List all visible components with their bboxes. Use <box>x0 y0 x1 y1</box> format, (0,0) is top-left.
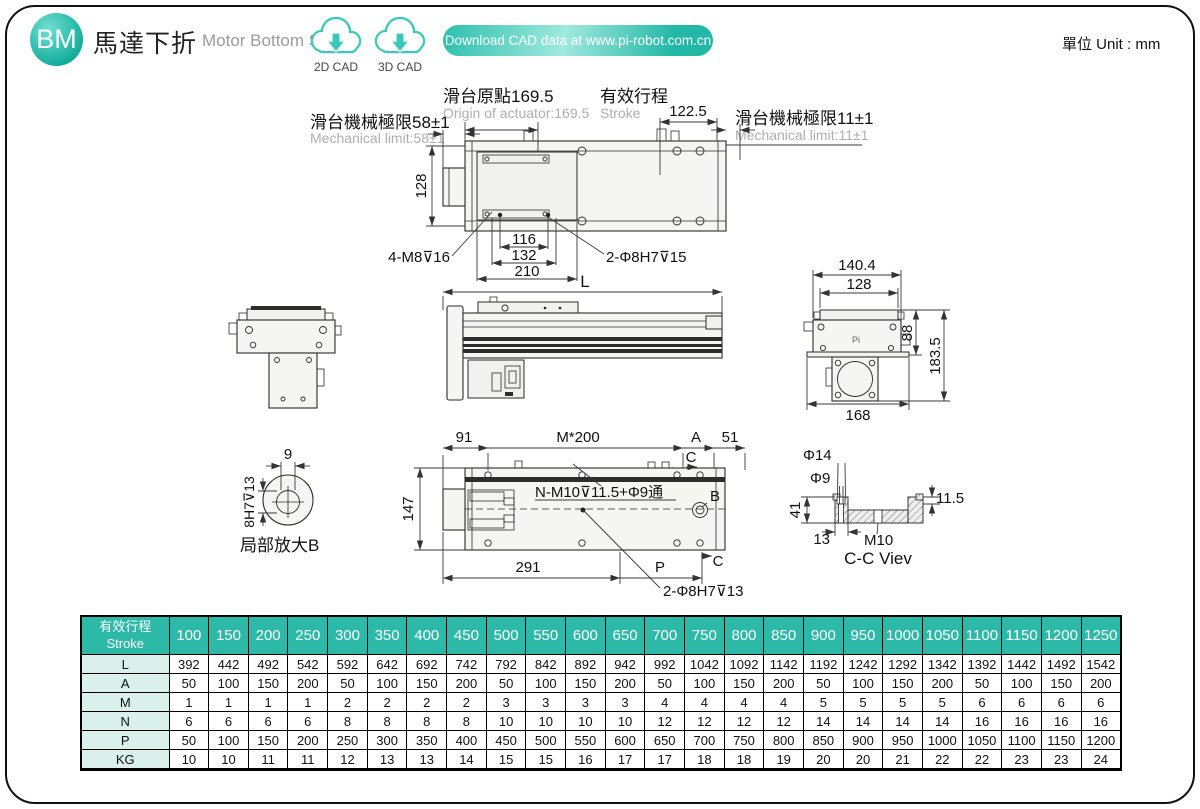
table-cell: 150 <box>566 674 606 693</box>
table-cell: 21 <box>883 750 923 770</box>
table-cell: 792 <box>486 655 526 674</box>
table-cell: 1 <box>169 693 209 712</box>
label-2-phi8h7-15: 2-Φ8H7⊽15 <box>606 249 687 266</box>
label-4-m8: 4-M8⊽16 <box>388 249 450 266</box>
table-cell: 3 <box>566 693 606 712</box>
table-cell: 642 <box>367 655 407 674</box>
origin-zh: 滑台原點169.5 <box>443 87 554 106</box>
stroke-col-header: 650 <box>605 616 645 655</box>
stroke-col-header: 400 <box>407 616 447 655</box>
table-cell: 50 <box>804 674 844 693</box>
table-cell: 16 <box>1041 712 1081 731</box>
table-cell: 10 <box>526 712 566 731</box>
dim-210: 210 <box>514 263 539 280</box>
table-row-m: M111122223333444455556666 <box>81 693 1121 712</box>
table-cell: 11 <box>248 750 288 770</box>
right-end-view: Pi 140.4 128 88 183.5 168 <box>804 257 950 424</box>
table-cell: 942 <box>605 655 645 674</box>
table-row-p: P501001502002503003504004505005506006507… <box>81 731 1121 750</box>
table-cell: 20 <box>804 750 844 770</box>
table-cell: 8 <box>407 712 447 731</box>
stroke-col-header: 100 <box>169 616 209 655</box>
table-cell: 392 <box>169 655 209 674</box>
table-cell: 6 <box>248 712 288 731</box>
table-cell: 20 <box>843 750 883 770</box>
table-cell: 842 <box>526 655 566 674</box>
left-end-view <box>229 306 341 408</box>
table-cell: 800 <box>764 731 804 750</box>
table-cell: 1100 <box>1002 731 1042 750</box>
table-cell: 492 <box>248 655 288 674</box>
table-cell: 6 <box>209 712 249 731</box>
stroke-col-header: 750 <box>685 616 725 655</box>
table-cell: 992 <box>645 655 685 674</box>
table-cell: 1 <box>288 693 328 712</box>
table-cell: 950 <box>883 731 923 750</box>
stroke-col-header: 600 <box>566 616 606 655</box>
table-cell: 18 <box>724 750 764 770</box>
table-cell: 150 <box>248 674 288 693</box>
table-cell: 16 <box>566 750 606 770</box>
table-cell: 892 <box>566 655 606 674</box>
row-label: L <box>81 655 169 674</box>
table-cell: 1 <box>209 693 249 712</box>
table-cell: 100 <box>367 674 407 693</box>
table-cell: 200 <box>447 674 487 693</box>
table-cell: 500 <box>526 731 566 750</box>
dim-116: 116 <box>512 231 536 248</box>
stroke-col-header: 1150 <box>1002 616 1042 655</box>
dim-P: P <box>655 559 665 576</box>
stroke-col-header: 1200 <box>1041 616 1081 655</box>
table-cell: 300 <box>367 731 407 750</box>
table-cell: 200 <box>605 674 645 693</box>
table-cell: 6 <box>1081 693 1121 712</box>
top-plan-view: 128 116 132 210 4-M8⊽16 2-Φ8H7⊽15 滑台機械極限… <box>310 87 873 281</box>
table-cell: 22 <box>922 750 962 770</box>
technical-drawing: 128 116 132 210 4-M8⊽16 2-Φ8H7⊽15 滑台機械極限… <box>0 0 1200 615</box>
table-cell: 592 <box>328 655 368 674</box>
table-cell: 16 <box>962 712 1002 731</box>
table-cell: 100 <box>526 674 566 693</box>
table-cell: 3 <box>605 693 645 712</box>
cc-view-caption: C-C Viev <box>844 549 912 568</box>
table-cell: 14 <box>883 712 923 731</box>
table-row-l: L392442492542592642692742792842892942992… <box>81 655 1121 674</box>
dim-phi14: Φ14 <box>803 447 832 464</box>
table-cell: 13 <box>407 750 447 770</box>
table-cell: 1292 <box>883 655 923 674</box>
stroke-col-header: 1050 <box>922 616 962 655</box>
table-cell: 8 <box>328 712 368 731</box>
table-cell: 2 <box>447 693 487 712</box>
dim-8h7-13: 8H7⊽13 <box>241 476 257 528</box>
table-cell: 5 <box>804 693 844 712</box>
table-cell: 23 <box>1041 750 1081 770</box>
label-n-m10: N-M10⊽11.5+Φ9通 <box>535 484 663 501</box>
detail-b-caption: 局部放大B <box>240 536 319 555</box>
dim-88: 88 <box>899 325 916 342</box>
table-cell: 50 <box>962 674 1002 693</box>
table-cell: 2 <box>328 693 368 712</box>
stroke-col-header: 700 <box>645 616 685 655</box>
table-cell: 14 <box>804 712 844 731</box>
table-cell: 50 <box>169 731 209 750</box>
stroke-col-header: 850 <box>764 616 804 655</box>
stroke-col-header: 350 <box>367 616 407 655</box>
dim-13: 13 <box>813 531 830 548</box>
table-cell: 1150 <box>1041 731 1081 750</box>
dim-A: A <box>691 429 701 446</box>
table-cell: 17 <box>645 750 685 770</box>
section-c-top: C <box>686 449 697 466</box>
table-cell: 12 <box>645 712 685 731</box>
table-cell: 18 <box>685 750 725 770</box>
table-cell: 8 <box>447 712 487 731</box>
table-cell: 50 <box>486 674 526 693</box>
table-cell: 10 <box>605 712 645 731</box>
dim-L: L <box>580 272 589 291</box>
dim-51: 51 <box>722 429 739 446</box>
dim-91: 91 <box>456 429 473 446</box>
table-row-a: A501001502005010015020050100150200501001… <box>81 674 1121 693</box>
stroke-col-header: 1100 <box>962 616 1002 655</box>
table-cell: 1092 <box>724 655 764 674</box>
dim-140-4: 140.4 <box>838 257 876 274</box>
table-cell: 4 <box>724 693 764 712</box>
table-cell: 2 <box>407 693 447 712</box>
table-cell: 550 <box>566 731 606 750</box>
table-cell: 100 <box>685 674 725 693</box>
table-cell: 650 <box>645 731 685 750</box>
table-cell: 150 <box>407 674 447 693</box>
table-cell: 5 <box>922 693 962 712</box>
stroke-col-header: 950 <box>843 616 883 655</box>
table-cell: 450 <box>486 731 526 750</box>
table-cell: 19 <box>764 750 804 770</box>
table-cell: 150 <box>1041 674 1081 693</box>
table-cell: 15 <box>526 750 566 770</box>
table-cell: 200 <box>764 674 804 693</box>
table-cell: 200 <box>922 674 962 693</box>
table-cell: 100 <box>1002 674 1042 693</box>
dim-168: 168 <box>845 407 870 424</box>
limit-left-en: Mechanical limit:58±1 <box>310 130 445 146</box>
table-cell: 100 <box>209 731 249 750</box>
table-cell: 1200 <box>1081 731 1121 750</box>
table-cell: 1142 <box>764 655 804 674</box>
table-cell: 900 <box>843 731 883 750</box>
stroke-col-header: 200 <box>248 616 288 655</box>
table-cell: 1000 <box>922 731 962 750</box>
table-cell: 750 <box>724 731 764 750</box>
stroke-col-header: 550 <box>526 616 566 655</box>
bottom-view: N-M10⊽11.5+Φ9通 2-Φ8H7⊽13 B 91 M*200 A 51… <box>400 429 745 600</box>
table-cell: 12 <box>328 750 368 770</box>
table-cell: 1342 <box>922 655 962 674</box>
table-cell: 50 <box>169 674 209 693</box>
dim-183-5: 183.5 <box>927 337 944 375</box>
dim-122-5: 122.5 <box>669 103 707 120</box>
table-cell: 1042 <box>685 655 725 674</box>
dim-147: 147 <box>400 496 417 521</box>
table-cell: 12 <box>724 712 764 731</box>
table-cell: 1242 <box>843 655 883 674</box>
row-label: M <box>81 693 169 712</box>
dim-291: 291 <box>515 559 540 576</box>
table-cell: 100 <box>843 674 883 693</box>
stroke-col-header: 1000 <box>883 616 923 655</box>
label-2-phi8h7-13: 2-Φ8H7⊽13 <box>663 583 744 600</box>
table-cell: 2 <box>367 693 407 712</box>
table-cell: 150 <box>248 731 288 750</box>
row-label: N <box>81 712 169 731</box>
table-cell: 6 <box>1002 693 1042 712</box>
table-cell: 13 <box>367 750 407 770</box>
table-cell: 12 <box>685 712 725 731</box>
table-cell: 14 <box>843 712 883 731</box>
dim-128-top: 128 <box>413 173 430 198</box>
table-cell: 1 <box>248 693 288 712</box>
stroke-table-head: 有效行程Stroke100150200250300350400450500550… <box>81 616 1121 655</box>
table-cell: 4 <box>764 693 804 712</box>
table-cell: 16 <box>1081 712 1121 731</box>
table-cell: 10 <box>169 750 209 770</box>
side-view: L <box>443 272 722 400</box>
dim-128-end: 128 <box>846 276 871 293</box>
stroke-col-header: 500 <box>486 616 526 655</box>
pi-logo: Pi <box>852 335 860 345</box>
stroke-col-header: 250 <box>288 616 328 655</box>
table-cell: 1392 <box>962 655 1002 674</box>
stroke-zh: 有效行程 <box>600 87 668 106</box>
stroke-table: 有效行程Stroke100150200250300350400450500550… <box>80 615 1122 771</box>
table-cell: 150 <box>724 674 764 693</box>
table-cell: 17 <box>605 750 645 770</box>
table-cell: 100 <box>209 674 249 693</box>
table-row-kg: KG10101111121313141515161717181819202021… <box>81 750 1121 770</box>
row-label: A <box>81 674 169 693</box>
table-cell: 6 <box>962 693 1002 712</box>
table-cell: 700 <box>685 731 725 750</box>
table-cell: 14 <box>447 750 487 770</box>
row-label: P <box>81 731 169 750</box>
table-cell: 10 <box>566 712 606 731</box>
limit-right-en: Mechanical limit:11±1 <box>735 127 869 143</box>
label-B: B <box>710 488 720 505</box>
table-cell: 1492 <box>1041 655 1081 674</box>
table-cell: 4 <box>645 693 685 712</box>
table-cell: 1542 <box>1081 655 1121 674</box>
dim-m200: M*200 <box>556 429 599 446</box>
table-cell: 22 <box>962 750 1002 770</box>
table-cell: 1050 <box>962 731 1002 750</box>
stroke-header-label: 有效行程Stroke <box>81 616 169 655</box>
table-cell: 24 <box>1081 750 1121 770</box>
table-cell: 5 <box>843 693 883 712</box>
table-cell: 3 <box>486 693 526 712</box>
table-cell: 542 <box>288 655 328 674</box>
table-cell: 8 <box>367 712 407 731</box>
table-cell: 1192 <box>804 655 844 674</box>
table-cell: 600 <box>605 731 645 750</box>
table-cell: 250 <box>328 731 368 750</box>
table-cell: 400 <box>447 731 487 750</box>
table-cell: 442 <box>209 655 249 674</box>
table-cell: 1442 <box>1002 655 1042 674</box>
table-cell: 6 <box>288 712 328 731</box>
table-cell: 11 <box>288 750 328 770</box>
stroke-en: Stroke <box>600 105 641 121</box>
table-cell: 150 <box>883 674 923 693</box>
table-cell: 15 <box>486 750 526 770</box>
stroke-table-wrapper: 有效行程Stroke100150200250300350400450500550… <box>80 615 1122 771</box>
table-cell: 200 <box>1081 674 1121 693</box>
stroke-col-header: 300 <box>328 616 368 655</box>
dim-phi9: Φ9 <box>810 470 830 487</box>
dim-132: 132 <box>511 247 536 264</box>
table-cell: 6 <box>169 712 209 731</box>
stroke-col-header: 800 <box>724 616 764 655</box>
table-cell: 14 <box>922 712 962 731</box>
table-cell: 5 <box>883 693 923 712</box>
stroke-table-body: L392442492542592642692742792842892942992… <box>81 655 1121 770</box>
table-cell: 850 <box>804 731 844 750</box>
section-c-bottom: C <box>713 553 724 570</box>
table-cell: 4 <box>685 693 725 712</box>
table-cell: 50 <box>328 674 368 693</box>
table-cell: 10 <box>486 712 526 731</box>
detail-b-view: 9 8H7⊽13 局部放大B <box>240 446 319 555</box>
stroke-col-header: 1250 <box>1081 616 1121 655</box>
dim-41: 41 <box>787 502 804 519</box>
table-cell: 6 <box>1041 693 1081 712</box>
stroke-col-header: 900 <box>804 616 844 655</box>
table-cell: 16 <box>1002 712 1042 731</box>
dim-9: 9 <box>284 446 292 463</box>
table-cell: 23 <box>1002 750 1042 770</box>
row-label: KG <box>81 750 169 770</box>
table-cell: 200 <box>288 731 328 750</box>
stroke-col-header: 450 <box>447 616 487 655</box>
cc-section-view: Φ14 Φ9 41 13 M10 11.5 C-C Viev <box>787 447 964 568</box>
table-cell: 10 <box>209 750 249 770</box>
table-cell: 692 <box>407 655 447 674</box>
table-cell: 12 <box>764 712 804 731</box>
limit-right-zh: 滑台機械極限11±1 <box>735 109 873 128</box>
dim-m10: M10 <box>864 532 893 549</box>
dim-11-5: 11.5 <box>936 490 964 507</box>
origin-en: Origin of actuator:169.5 <box>443 105 590 121</box>
table-row-n: N666688881010101012121212141414141616161… <box>81 712 1121 731</box>
table-cell: 50 <box>645 674 685 693</box>
table-cell: 200 <box>288 674 328 693</box>
stroke-col-header: 150 <box>209 616 249 655</box>
table-cell: 742 <box>447 655 487 674</box>
table-cell: 350 <box>407 731 447 750</box>
table-cell: 3 <box>526 693 566 712</box>
